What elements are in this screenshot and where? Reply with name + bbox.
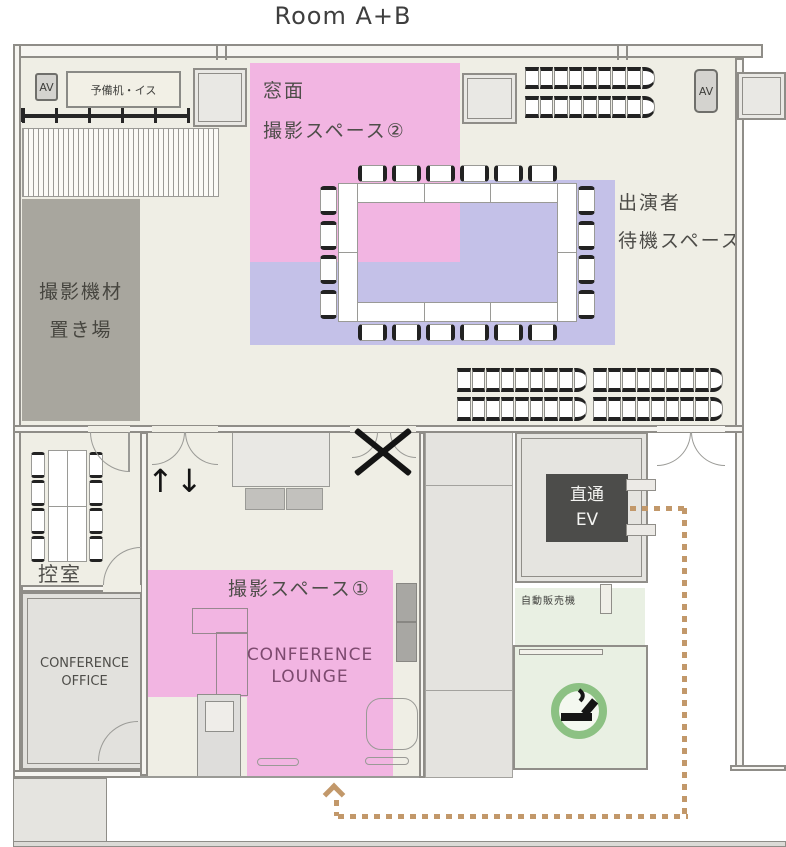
chair — [525, 96, 539, 118]
pillar-exterior — [737, 72, 786, 120]
lounge-label-line2: LOUNGE — [238, 667, 382, 687]
route-segment — [338, 814, 688, 819]
chair — [622, 397, 636, 421]
chair — [680, 397, 694, 421]
chair — [426, 324, 455, 341]
wall-bottom-left — [13, 770, 143, 778]
chair — [530, 397, 544, 421]
chair — [559, 368, 573, 392]
wall-top — [13, 44, 763, 58]
chair — [554, 96, 568, 118]
smoking-room — [513, 645, 648, 770]
chair — [494, 324, 523, 341]
conference-table-top — [357, 183, 558, 203]
wall-lounge-right — [419, 432, 425, 778]
chair — [544, 368, 558, 392]
double-door-arc — [691, 432, 725, 466]
window-space-label-line1: 窓面 — [263, 76, 305, 103]
chair — [608, 397, 622, 421]
bottom-edge — [13, 841, 786, 847]
pillar — [193, 68, 247, 127]
wall-left — [13, 44, 21, 847]
lounge-counter-top — [192, 608, 248, 634]
chair — [515, 368, 529, 392]
route-segment — [682, 508, 687, 818]
table-chairs-top — [358, 165, 557, 182]
anteroom-label: 控室 — [38, 558, 82, 587]
equipment-label-line1: 撮影機材 — [22, 277, 140, 304]
chair — [593, 368, 607, 392]
partition-joint — [216, 46, 227, 60]
chair — [627, 96, 641, 118]
chair-stack-row — [593, 397, 723, 421]
chair — [569, 96, 583, 118]
chair — [666, 368, 680, 392]
chair — [608, 368, 622, 392]
chair — [320, 186, 337, 215]
chair — [486, 397, 500, 421]
wall-anteroom-right — [140, 432, 148, 776]
wall-stub — [600, 584, 612, 614]
chair — [460, 324, 489, 341]
chair — [457, 397, 471, 421]
window-space-label-line2: 撮影スペース② — [263, 116, 406, 143]
chair — [392, 165, 421, 182]
chair — [494, 165, 523, 182]
chair — [622, 368, 636, 392]
wall-bottom-right — [730, 765, 786, 771]
chair — [637, 397, 651, 421]
chair — [559, 397, 573, 421]
stacked-items-hatch — [22, 128, 219, 197]
door-leaf — [128, 432, 130, 472]
av-right-label: AV — [699, 85, 713, 98]
round-table — [366, 698, 418, 750]
corridor-block — [425, 432, 513, 778]
chair — [612, 67, 626, 89]
chair — [320, 255, 337, 284]
conference-table-right — [557, 183, 577, 322]
route-segment — [630, 506, 686, 511]
spare-desk-box: 予備机・イス — [66, 71, 181, 108]
conference-office-room: CONFERENCE OFFICE — [21, 592, 148, 770]
chair — [460, 165, 489, 182]
chair — [392, 324, 421, 341]
chair — [89, 536, 103, 562]
chair — [651, 397, 665, 421]
bench — [257, 758, 299, 766]
up-down-arrows: ↑↓ — [147, 462, 205, 500]
chair — [486, 368, 500, 392]
lounge-cabinet — [197, 694, 241, 778]
office-door-arc — [98, 721, 138, 761]
equipment-storage-area: 撮影機材 置き場 — [22, 199, 140, 421]
chair — [89, 480, 103, 506]
chair — [578, 186, 595, 215]
desk-cabinet — [286, 488, 323, 510]
av-box-right: AV — [694, 69, 718, 113]
av-box-left: AV — [35, 73, 58, 101]
table-chairs-right — [578, 186, 595, 319]
chair-stack-row — [457, 368, 587, 392]
bench — [365, 757, 409, 765]
chair — [574, 368, 588, 392]
chair — [569, 67, 583, 89]
chair — [598, 67, 612, 89]
chair — [515, 397, 529, 421]
direct-elevator-box: 直通 EV — [546, 474, 628, 542]
pillar — [462, 73, 517, 124]
chair — [501, 397, 515, 421]
chair — [89, 508, 103, 534]
table-chairs-bottom — [358, 324, 557, 341]
conference-table-left — [338, 183, 358, 322]
chair — [680, 368, 694, 392]
chair — [554, 67, 568, 89]
chair — [31, 452, 45, 478]
chair — [358, 324, 387, 341]
shelf — [519, 649, 603, 655]
equipment-label-line2: 置き場 — [22, 315, 140, 342]
chair — [528, 324, 557, 341]
lounge-bottom-line — [140, 776, 425, 778]
shooting-space-1-label: 撮影スペース① — [228, 574, 371, 601]
performer-label-line2: 待機スペース — [618, 226, 742, 253]
elevator-label-line2: EV — [576, 508, 598, 534]
double-door-arc — [657, 432, 691, 466]
anteroom-chairs-left — [31, 452, 45, 562]
chair — [642, 96, 656, 118]
partition-joint — [617, 46, 628, 60]
chair — [544, 397, 558, 421]
chair — [472, 397, 486, 421]
chair — [578, 290, 595, 319]
chair — [593, 397, 607, 421]
elevator-door-stub — [626, 524, 656, 536]
wall-right — [735, 58, 744, 770]
chair — [320, 221, 337, 250]
chair — [627, 67, 641, 89]
chair — [710, 397, 724, 421]
performer-label-line1: 出演者 — [618, 188, 681, 215]
chair — [525, 67, 539, 89]
anteroom-chairs-right — [89, 452, 103, 562]
chair-stack-row — [593, 368, 723, 392]
desk-cabinet — [245, 488, 285, 510]
chair — [31, 508, 45, 534]
chair — [612, 96, 626, 118]
storage-box — [396, 583, 417, 622]
chair — [578, 255, 595, 284]
door-opening — [103, 585, 141, 592]
chair — [637, 368, 651, 392]
floor-plan-canvas: Room A+B 撮影機材 置き場 AV 予備机・イス AV — [0, 0, 786, 847]
chair — [540, 96, 554, 118]
lounge-label-line1: CONFERENCE — [238, 645, 382, 665]
chair — [642, 67, 656, 89]
chair — [695, 397, 709, 421]
chair — [528, 165, 557, 182]
chair — [695, 368, 709, 392]
chair — [472, 368, 486, 392]
conference-table-bottom — [357, 302, 558, 322]
chair — [530, 368, 544, 392]
chair — [583, 67, 597, 89]
elevator-door-stub — [626, 479, 656, 491]
table-chairs-left — [320, 186, 337, 319]
chair — [31, 480, 45, 506]
office-label-line2: OFFICE — [23, 674, 146, 689]
chair — [540, 67, 554, 89]
chair — [501, 368, 515, 392]
anteroom-table — [48, 450, 87, 562]
smoking-icon — [548, 680, 610, 742]
page-title: Room A+B — [233, 2, 453, 30]
chair — [358, 165, 387, 182]
chair — [574, 397, 588, 421]
chair-stack-row — [525, 96, 655, 118]
storage-box — [396, 622, 417, 662]
chair — [426, 165, 455, 182]
elevator-label-line1: 直通 — [570, 483, 604, 509]
chair — [320, 290, 337, 319]
office-label-line1: CONFERENCE — [23, 656, 146, 671]
chair — [578, 221, 595, 250]
chair — [583, 96, 597, 118]
chair — [651, 368, 665, 392]
spare-desk-label: 予備机・イス — [91, 82, 157, 98]
exterior-block — [13, 778, 107, 842]
reception-desk — [232, 430, 330, 487]
chair — [666, 397, 680, 421]
av-left-label: AV — [39, 81, 53, 94]
chair — [598, 96, 612, 118]
chair-stack-row — [457, 397, 587, 421]
chair — [457, 368, 471, 392]
vending-label: 自動販売機 — [521, 592, 576, 607]
partition-rail — [22, 108, 192, 124]
chair-stack-row — [525, 67, 655, 89]
chair — [710, 368, 724, 392]
vending-area: 自動販売機 — [515, 588, 645, 645]
